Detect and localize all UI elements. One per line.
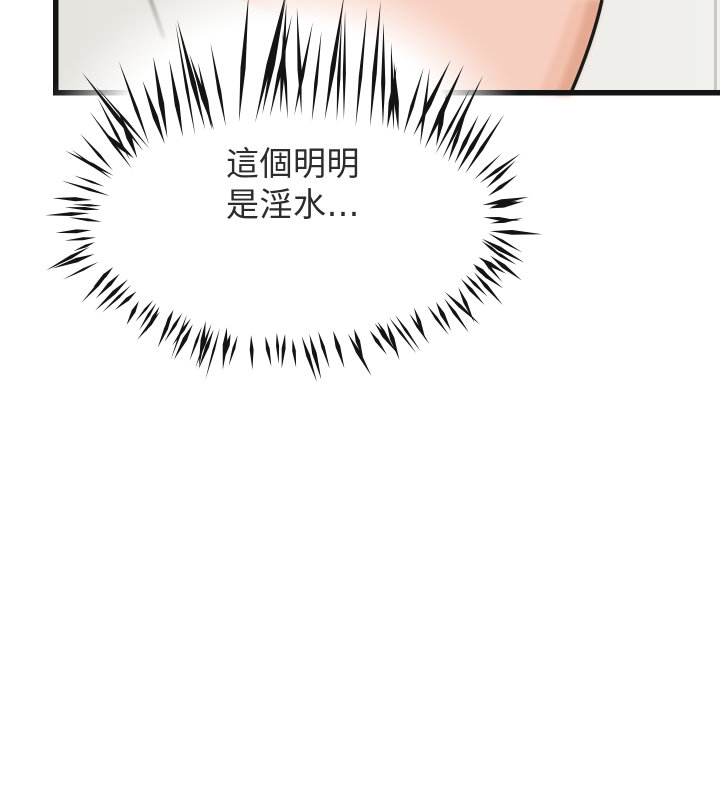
- comic-art: [0, 0, 720, 800]
- comic-page: 這個明明是淫水…: [0, 0, 720, 800]
- bubble-text-line-1: 這個明明: [226, 143, 360, 184]
- bubble-text: 這個明明是淫水…: [226, 143, 360, 225]
- bubble-text-line-2: 是淫水…: [226, 184, 360, 225]
- panel-right-edge: [714, 0, 717, 95]
